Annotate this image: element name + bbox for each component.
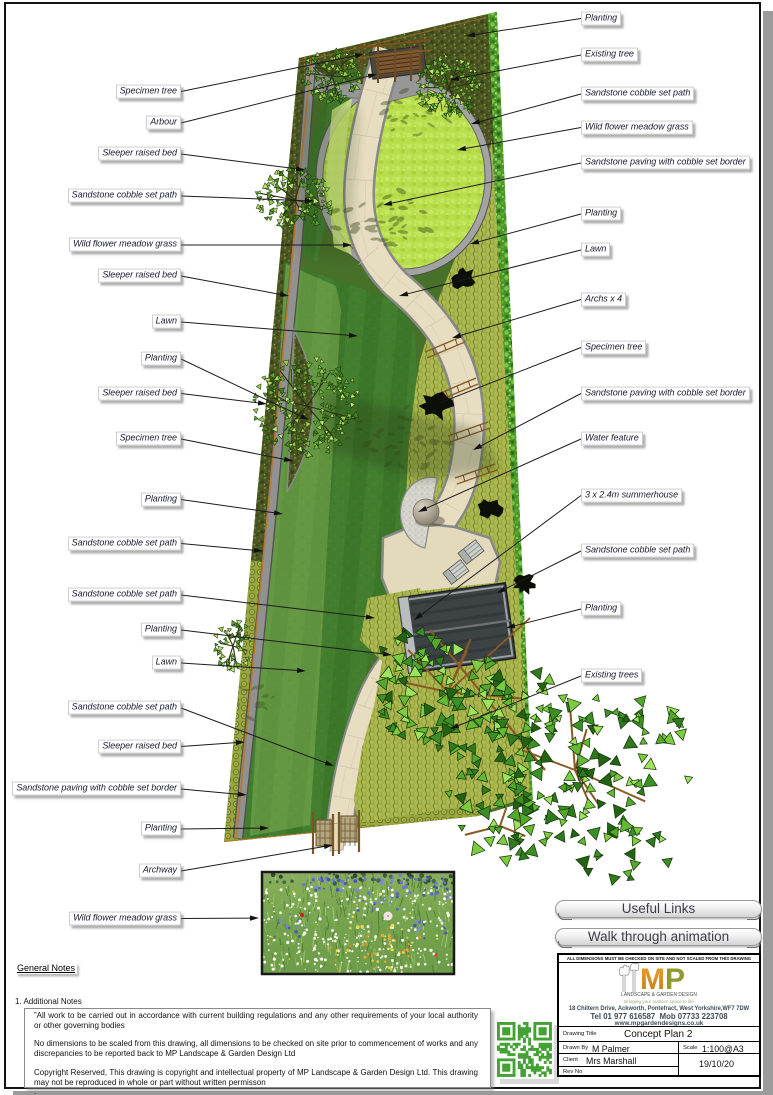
svg-text:P: P	[665, 963, 685, 993]
svg-text:M: M	[640, 963, 664, 993]
